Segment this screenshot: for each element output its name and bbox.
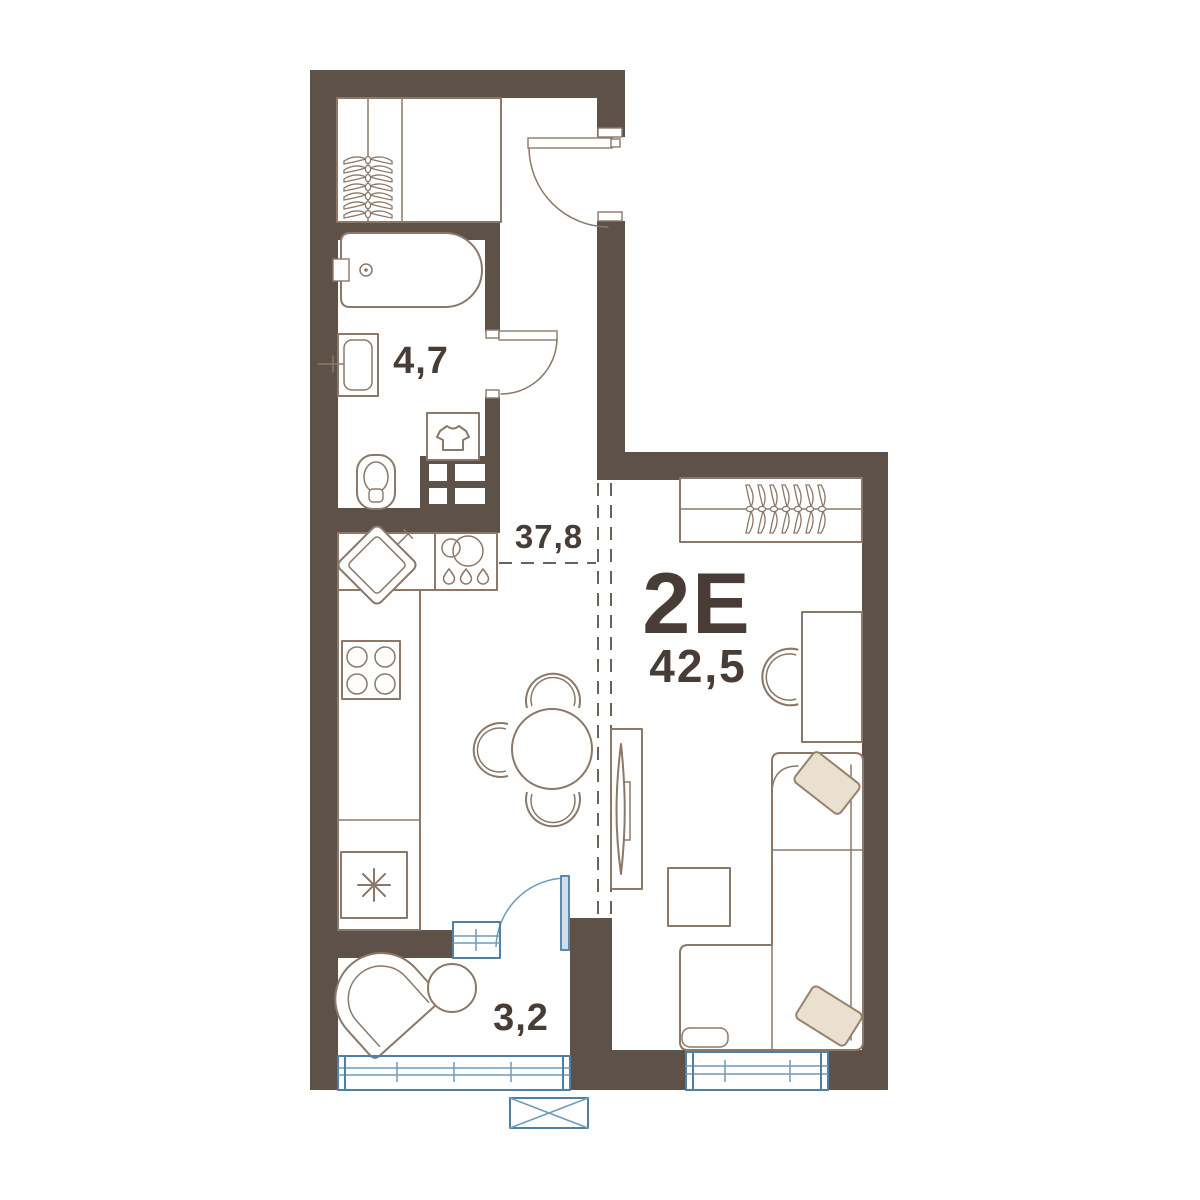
total-area-label: 42,5	[649, 640, 747, 692]
desk	[802, 612, 862, 742]
snowflake-icon	[358, 869, 390, 901]
entry-door-hinge	[611, 139, 620, 147]
apartment-type-label: 2Е	[642, 556, 751, 652]
wall-cap	[486, 390, 499, 398]
stove	[342, 641, 400, 699]
wall-living-top	[597, 452, 888, 480]
bathtub	[341, 233, 482, 307]
floor-plan-page: 4,7 37,8 2Е 42,5 3,2	[0, 0, 1200, 1200]
wall-top	[310, 70, 625, 98]
wall-cap	[486, 330, 499, 338]
wall-bottom-mid	[570, 1050, 686, 1090]
toilet	[357, 455, 395, 509]
wall-hall-right	[597, 221, 625, 455]
fridge	[341, 852, 407, 918]
loggia-side-table	[428, 964, 476, 1012]
bathtub-mixer	[333, 259, 349, 281]
wall-bathroom-right-upper	[485, 240, 500, 332]
washing-machine	[427, 413, 479, 460]
wall-bottom-right	[828, 1050, 888, 1090]
dishwasher	[435, 533, 497, 590]
main-area-label: 37,8	[515, 518, 583, 555]
bathroom-door-leaf	[499, 331, 557, 340]
wall-cap	[598, 212, 622, 221]
bathroom-area-label: 4,7	[393, 340, 449, 382]
entry-door-leaf	[528, 138, 612, 148]
wall-cap	[598, 128, 622, 137]
tv-stand	[611, 729, 642, 889]
wall-right	[862, 452, 888, 1090]
bathtub-drain-dot	[364, 268, 368, 272]
wall-loggia-right	[570, 918, 612, 1052]
balcony-door-leaf	[561, 876, 569, 950]
floor-plan-svg: 4,7 37,8 2Е 42,5 3,2	[0, 0, 1200, 1200]
coffee-table	[668, 868, 730, 926]
living-wardrobe	[680, 478, 862, 542]
loggia-area-label: 3,2	[493, 997, 549, 1039]
dining-table	[512, 709, 592, 789]
